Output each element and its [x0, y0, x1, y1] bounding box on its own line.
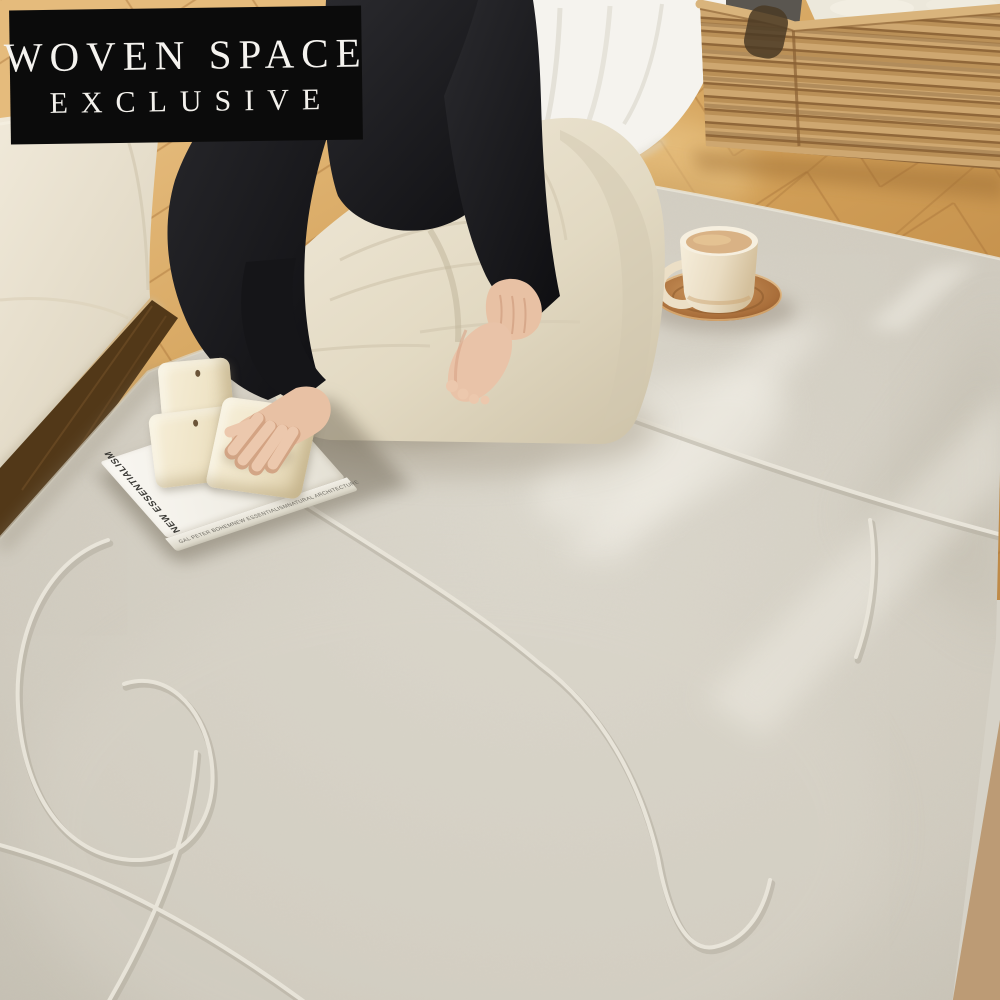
reaching-arm-overlay [0, 0, 1000, 1000]
left-forearm-sleeve [241, 258, 326, 402]
brand-badge: WOVEN SPACE EXCLUSIVE [9, 6, 363, 145]
left-hand [230, 386, 331, 468]
badge-brand-name: WOVEN SPACE [4, 28, 368, 81]
product-photo-living-room: NEW ESSENTIALISM MATERIAL ARCHITECTURE G… [0, 0, 1000, 1000]
badge-exclusive-label: EXCLUSIVE [49, 83, 333, 121]
